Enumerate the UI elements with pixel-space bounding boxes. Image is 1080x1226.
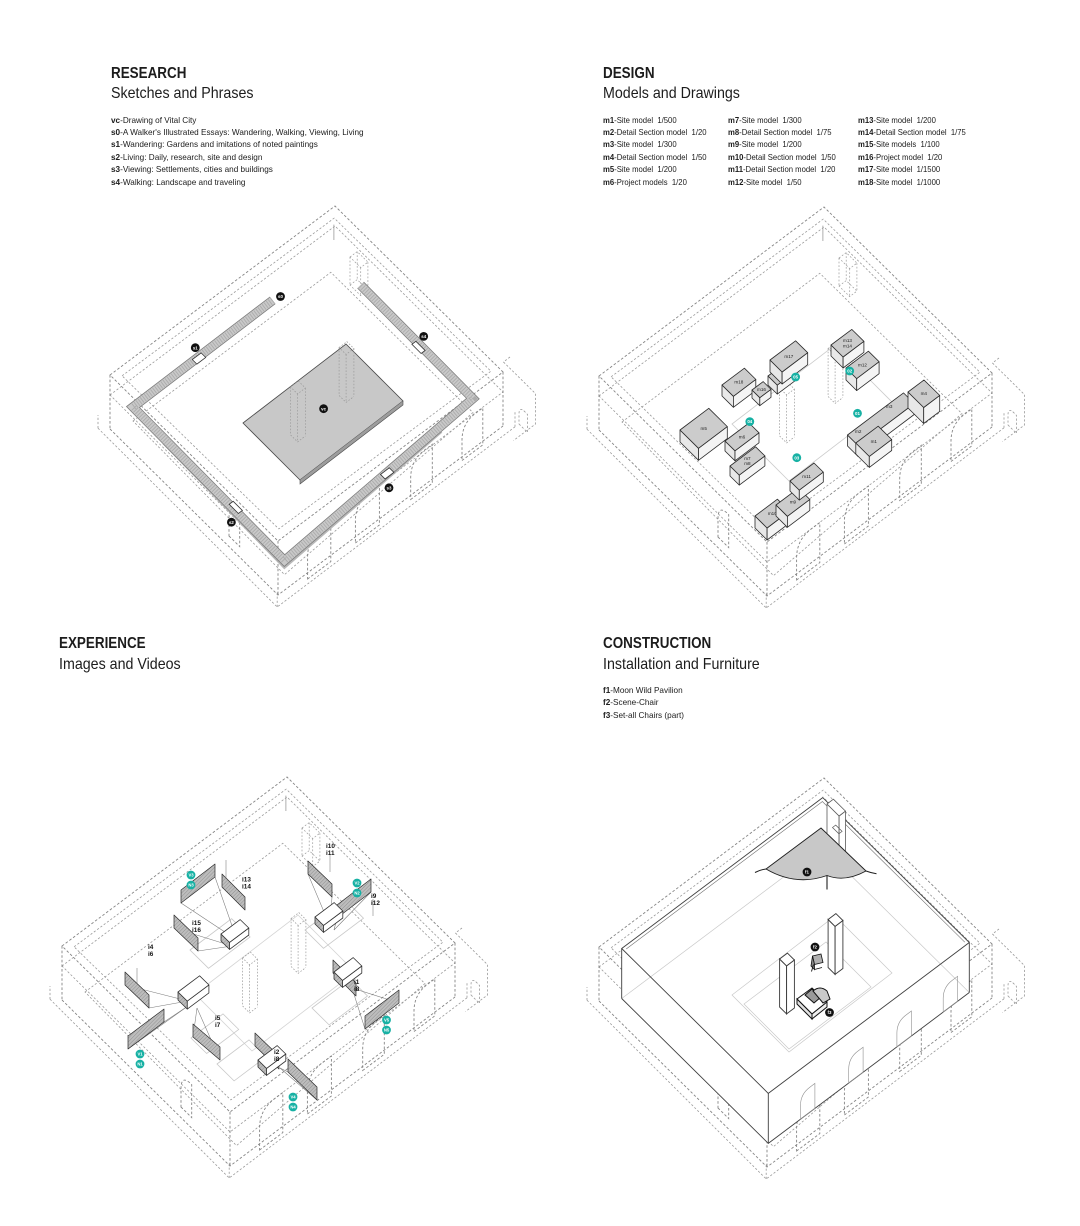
svg-text:m16: m16 <box>757 387 766 392</box>
svg-text:V2: V2 <box>354 881 360 886</box>
svg-text:s4: s4 <box>421 334 426 339</box>
svg-text:V1: V1 <box>137 1052 143 1057</box>
svg-text:i11: i11 <box>326 850 335 857</box>
svg-text:m12: m12 <box>858 362 867 367</box>
svg-text:i4: i4 <box>148 944 154 951</box>
svg-text:m18: m18 <box>734 380 743 385</box>
svg-text:02: 02 <box>847 369 852 374</box>
svg-text:i14: i14 <box>242 884 251 891</box>
svg-text:m1: m1 <box>871 439 878 444</box>
svg-text:V4: V4 <box>290 1095 296 1100</box>
svg-text:m3: m3 <box>886 404 893 409</box>
svg-text:m4: m4 <box>921 391 928 396</box>
svg-text:05: 05 <box>793 375 798 380</box>
svg-text:m5: m5 <box>701 426 708 431</box>
svg-text:i15: i15 <box>192 920 201 927</box>
svg-text:i2: i2 <box>274 1049 280 1056</box>
svg-text:N5: N5 <box>384 1028 390 1033</box>
svg-text:i8: i8 <box>354 986 360 993</box>
svg-text:i12: i12 <box>371 900 380 907</box>
svg-text:i10: i10 <box>326 843 335 850</box>
svg-text:m8: m8 <box>744 461 751 466</box>
svg-text:i6: i6 <box>148 951 154 958</box>
svg-text:i5: i5 <box>215 1015 221 1022</box>
svg-text:i7: i7 <box>215 1022 221 1029</box>
svg-text:m2: m2 <box>855 429 862 434</box>
svg-text:vc: vc <box>321 406 326 411</box>
svg-text:N3: N3 <box>188 883 194 888</box>
svg-text:i1: i1 <box>354 979 360 986</box>
svg-text:N2: N2 <box>354 891 360 896</box>
svg-text:m9: m9 <box>790 500 797 505</box>
svg-text:i16: i16 <box>192 927 201 934</box>
svg-text:i9: i9 <box>371 893 377 900</box>
svg-text:f1: f1 <box>805 870 809 875</box>
svg-text:04: 04 <box>747 419 752 424</box>
svg-text:s0: s0 <box>278 294 283 299</box>
svg-text:m11: m11 <box>802 474 811 479</box>
svg-text:m14: m14 <box>843 343 852 348</box>
svg-text:m17: m17 <box>784 354 793 359</box>
svg-text:N1: N1 <box>137 1062 143 1067</box>
svg-text:s2: s2 <box>229 520 234 525</box>
svg-text:i8: i8 <box>274 1056 280 1063</box>
svg-text:01: 01 <box>855 411 860 416</box>
svg-text:i13: i13 <box>242 877 251 884</box>
svg-text:s1: s1 <box>193 345 198 350</box>
svg-text:f3: f3 <box>828 1010 832 1015</box>
svg-text:s3: s3 <box>387 485 392 490</box>
svg-text:m6: m6 <box>739 434 746 439</box>
svg-text:V3: V3 <box>188 873 194 878</box>
svg-text:N4: N4 <box>290 1105 296 1110</box>
svg-text:V5: V5 <box>384 1018 390 1023</box>
svg-text:f2: f2 <box>813 945 817 950</box>
svg-text:03: 03 <box>794 455 799 460</box>
